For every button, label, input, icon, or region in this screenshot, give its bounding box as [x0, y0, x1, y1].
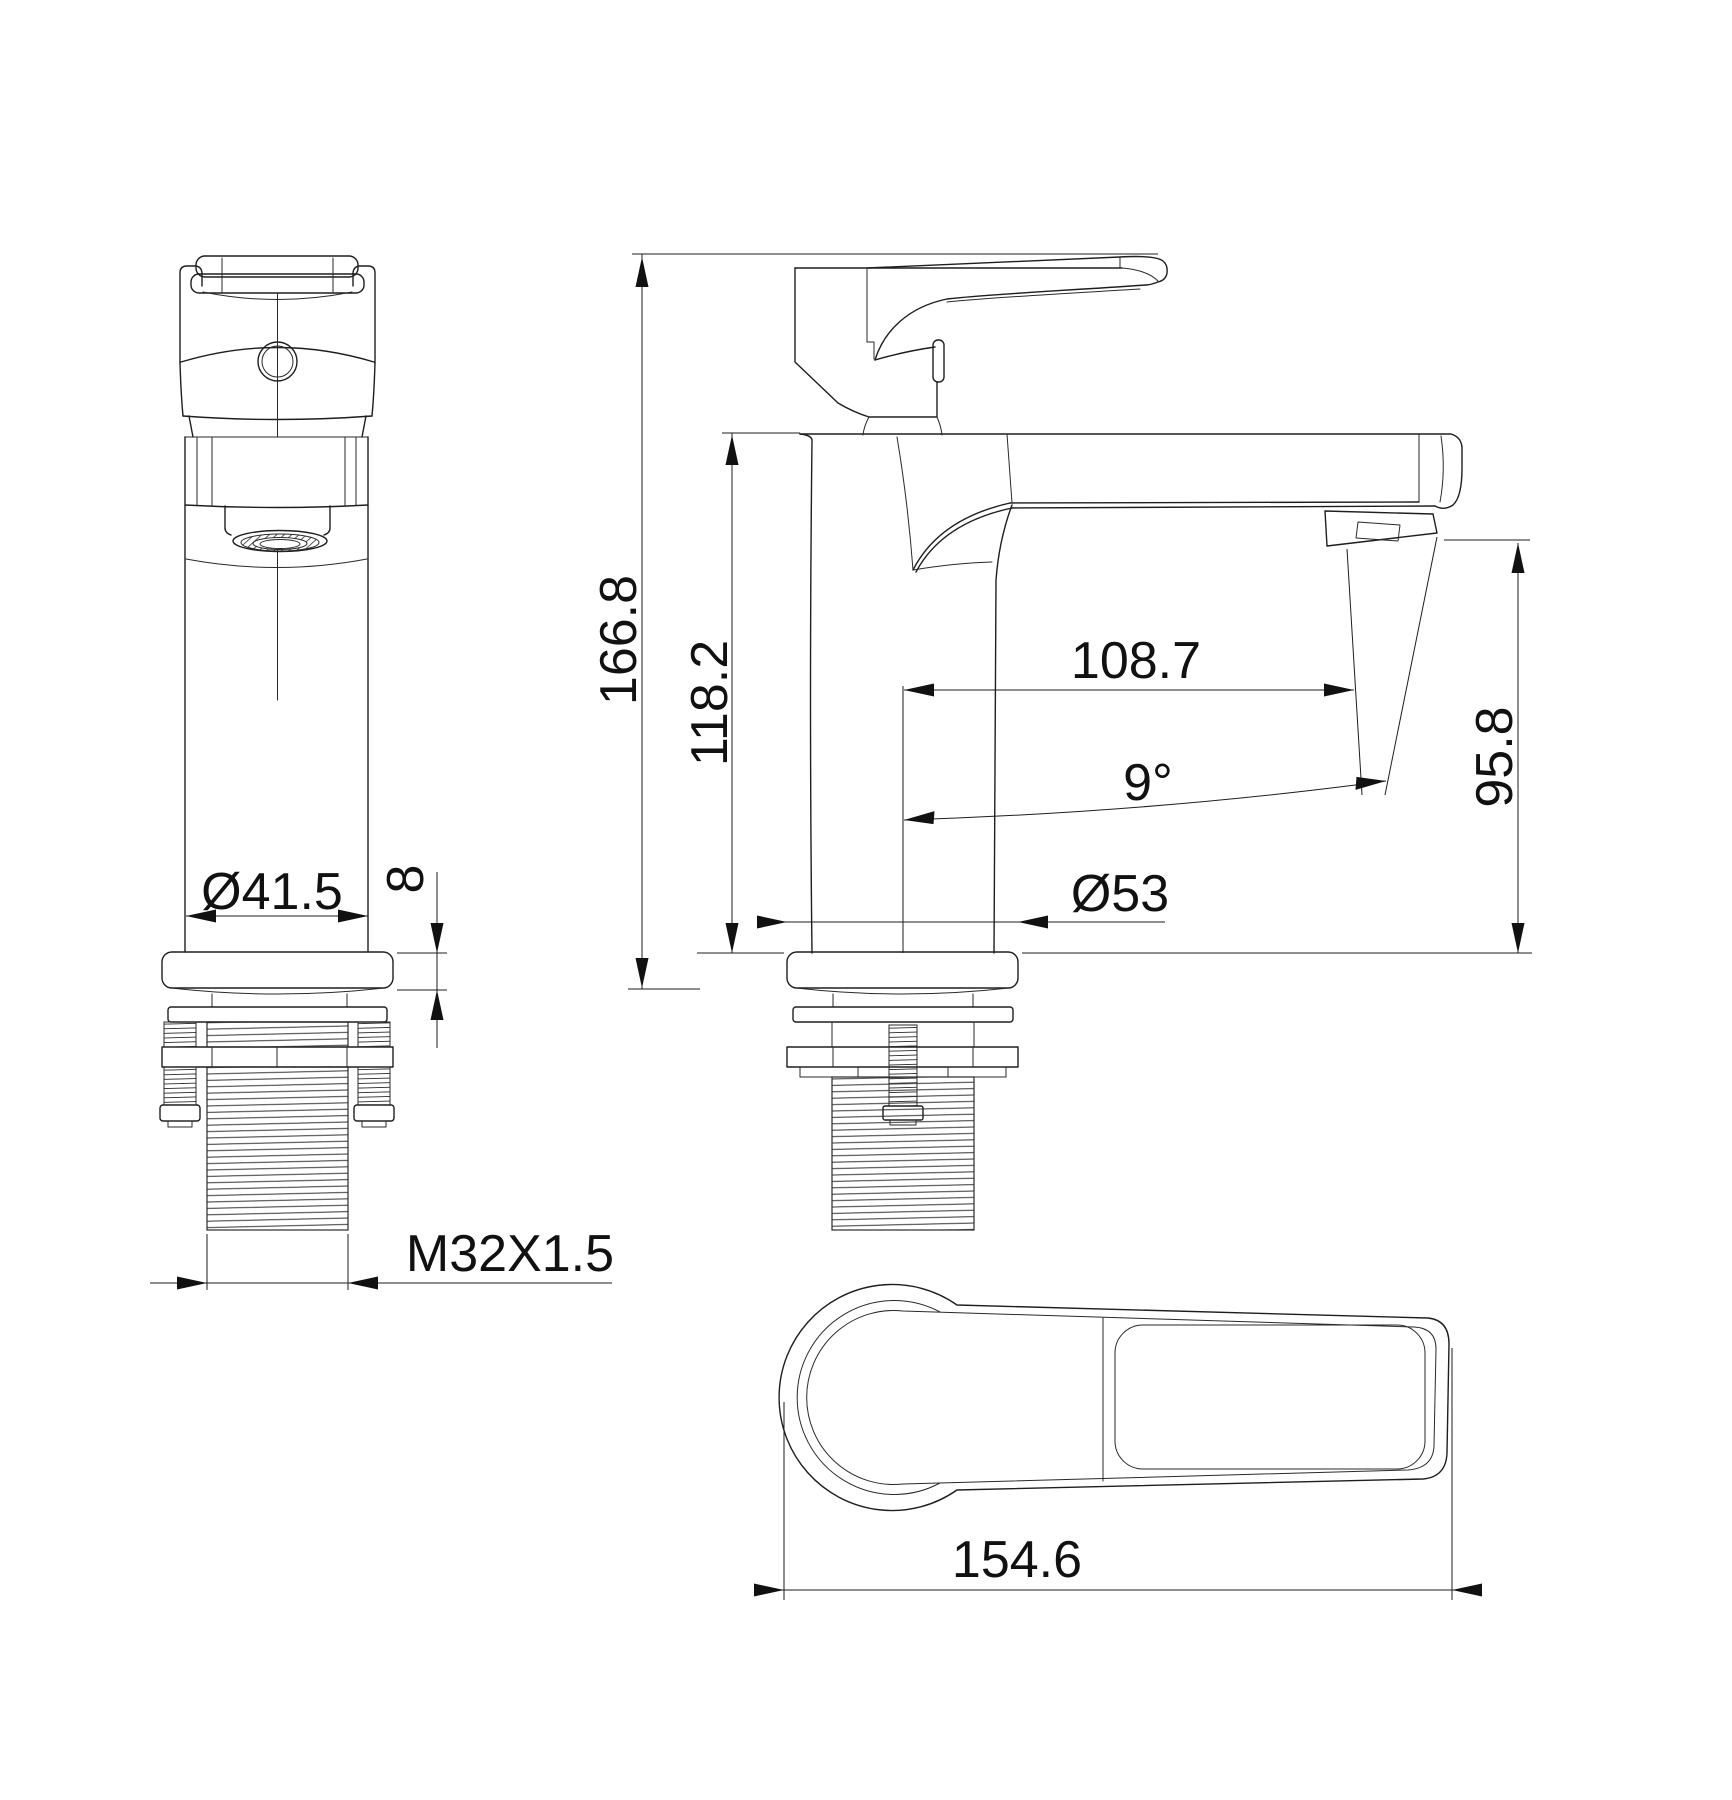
dim-spout-reach-label: 108.7 [1071, 632, 1201, 690]
dim-handle-length-label: 154.6 [952, 1531, 1082, 1589]
bolt-thread-upper [164, 1022, 196, 1047]
shank-thread-lower [207, 1067, 348, 1230]
dim-base-diameter-label: Ø53 [1071, 865, 1169, 923]
mounting-stud-side [889, 1025, 917, 1106]
bolt-thread-lower [164, 1067, 196, 1105]
bolt-thread-lower [358, 1067, 390, 1105]
dim-body-diameter-label: Ø41.5 [201, 863, 343, 921]
shank-thread-upper [207, 1022, 348, 1047]
dim-outlet-height-label: 95.8 [1466, 706, 1524, 807]
cad-drawing: Ø41.5 8 M32X1.5 166.8 118.2 108.7 [0, 0, 1732, 1800]
dim-body-diameter: Ø41.5 [186, 863, 368, 923]
dim-overall-height-label: 166.8 [590, 575, 648, 705]
aerator-front [233, 531, 327, 552]
dim-thread-spec-label: M32X1.5 [406, 1225, 614, 1283]
dim-flange-thickness-label: 8 [377, 865, 435, 894]
dim-spout-angle-label: 9° [1123, 754, 1173, 812]
dim-body-height-label: 118.2 [681, 640, 739, 766]
bolt-thread-upper [358, 1022, 390, 1047]
